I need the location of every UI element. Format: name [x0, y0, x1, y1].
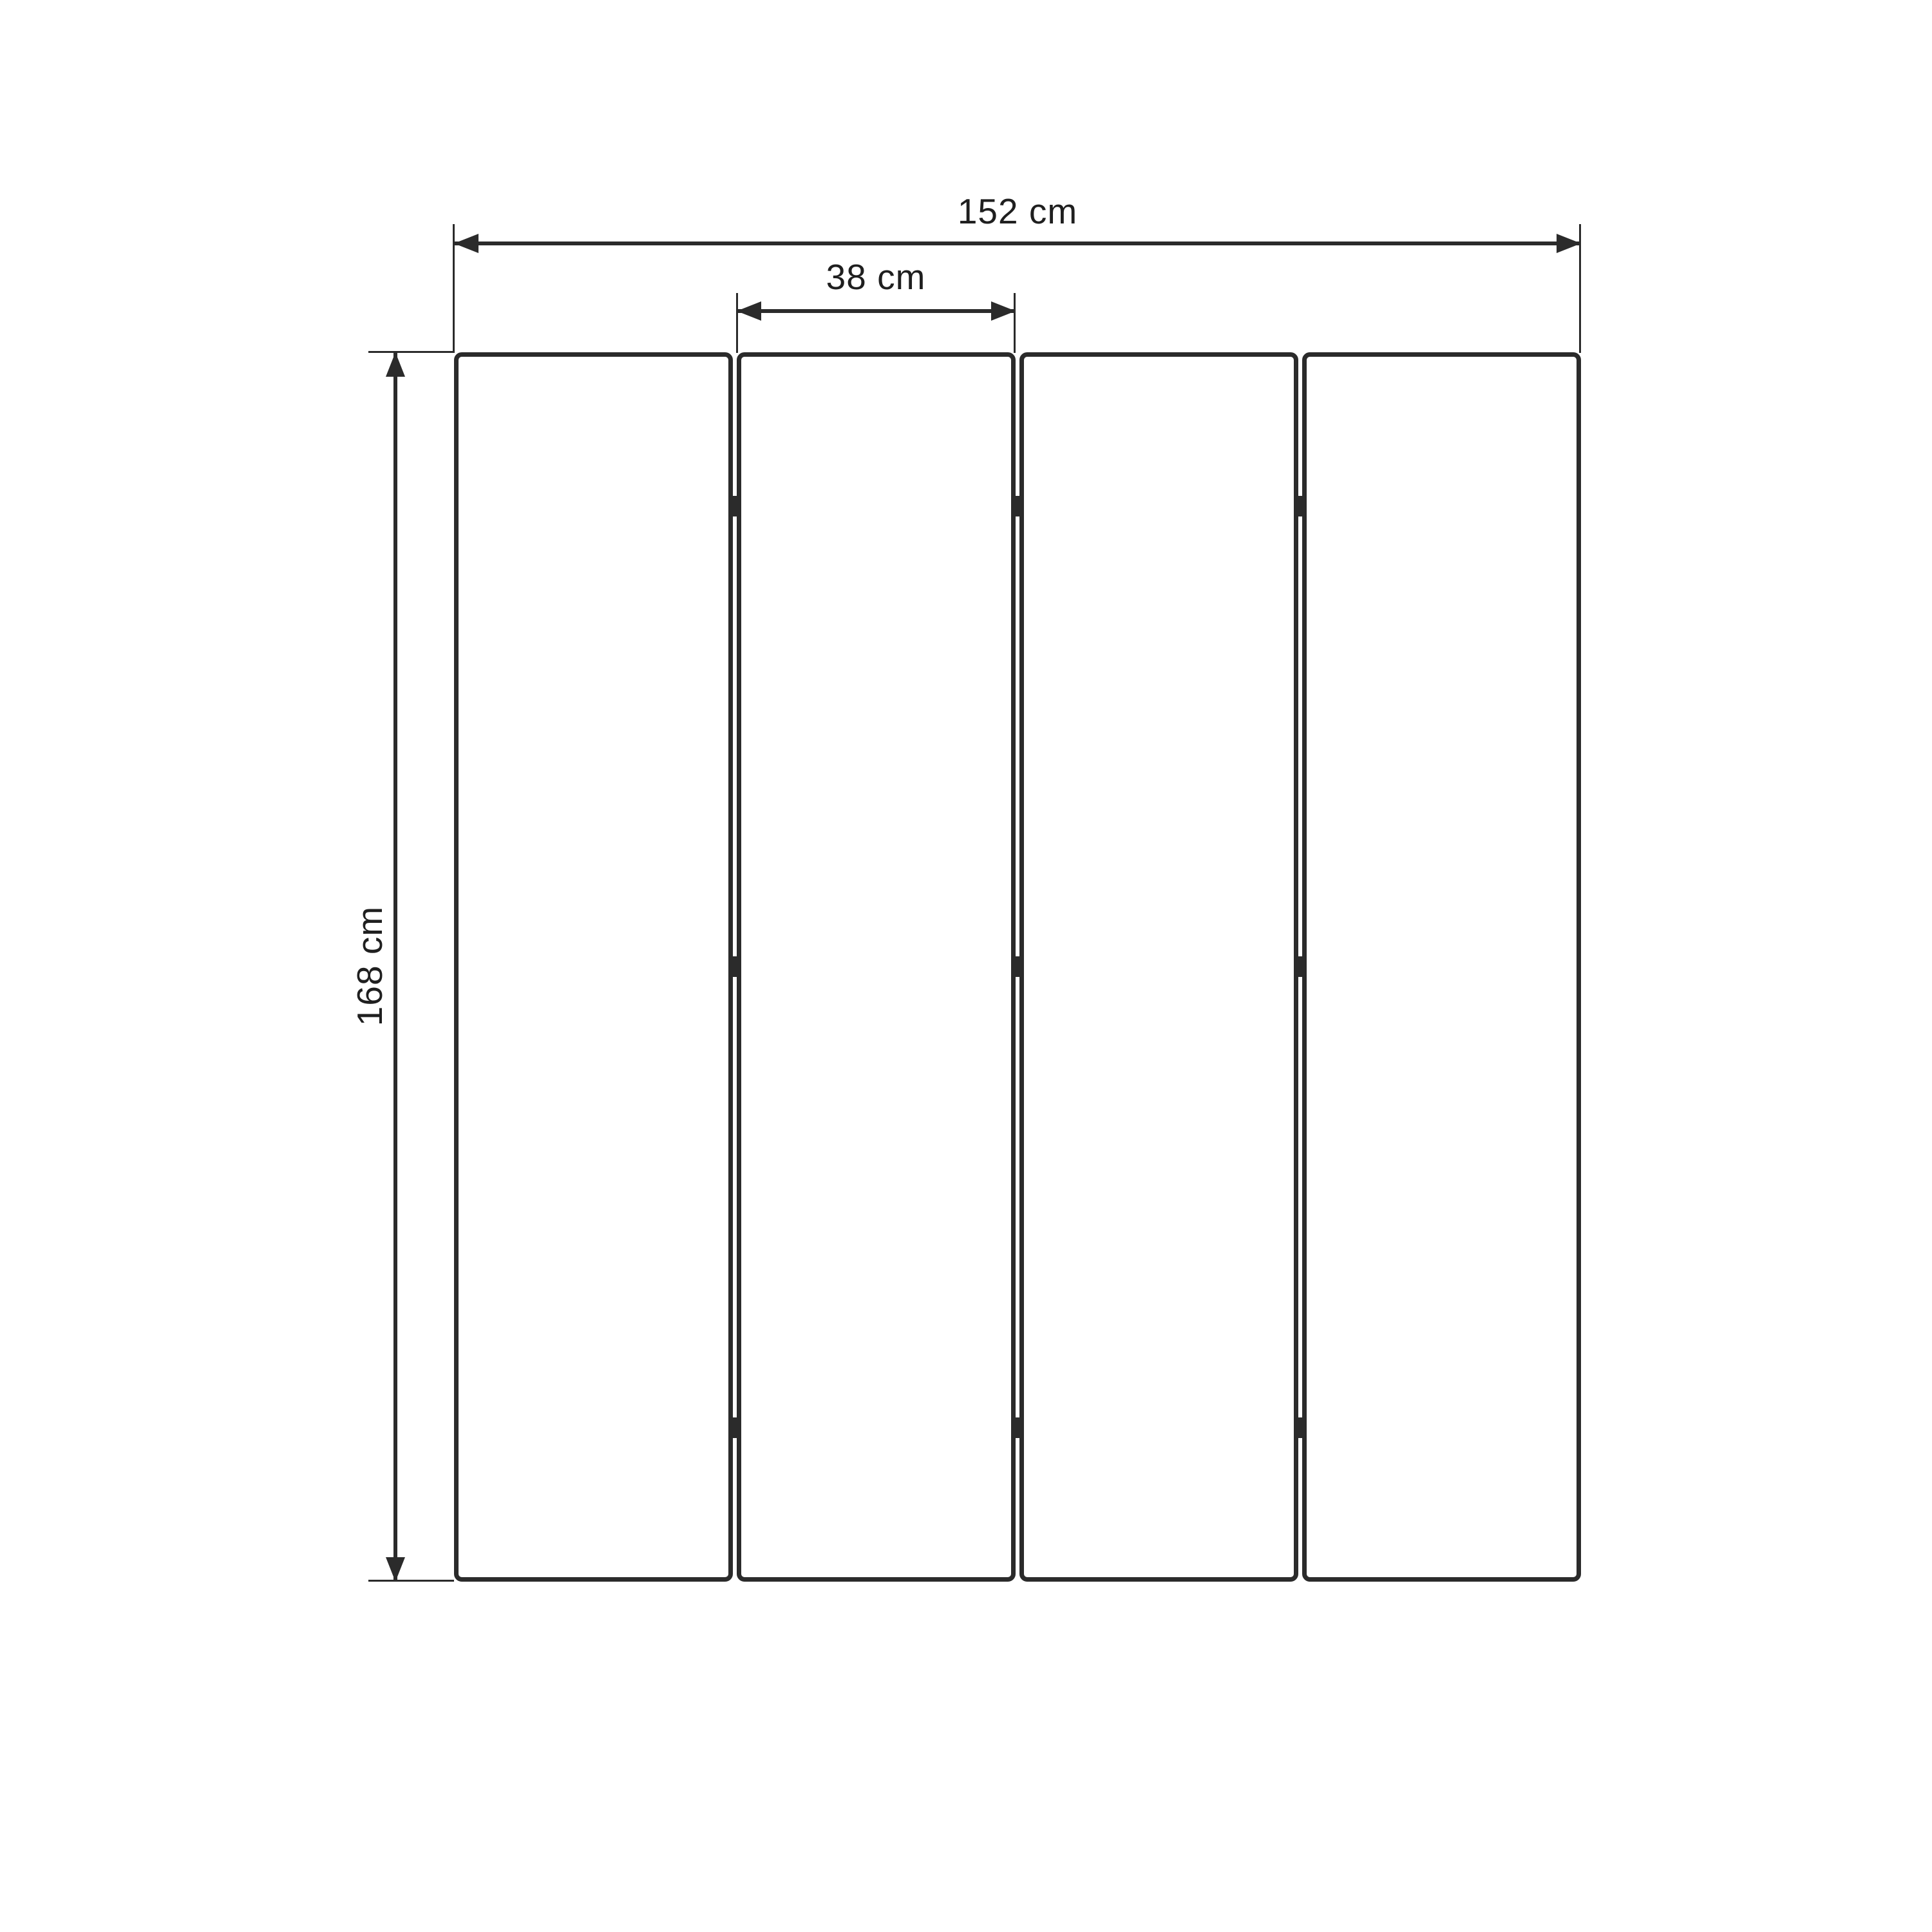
total-width-arrowhead-left-icon	[454, 234, 478, 253]
hinge-mark	[730, 956, 741, 977]
hinge-mark	[730, 1417, 741, 1438]
hinge-mark	[1295, 956, 1306, 977]
divider-panel-1	[454, 352, 733, 1582]
height-dimension-label: 168 cm	[349, 906, 390, 1026]
panel-width-extension-line-left	[736, 293, 738, 353]
hinge-mark	[1012, 956, 1023, 977]
total-width-extension-line-left	[453, 224, 455, 353]
height-arrowhead-up-icon	[386, 352, 405, 377]
total-width-extension-line-right	[1579, 224, 1581, 353]
diagram-canvas: 152 cm 38 cm 168 cm	[0, 0, 1932, 1932]
panel-width-dimension-line	[737, 309, 1016, 313]
panel-width-arrowhead-left-icon	[737, 301, 761, 321]
panel-width-extension-line-right	[1014, 293, 1016, 353]
height-dimension-line	[393, 352, 397, 1582]
total-width-arrowhead-right-icon	[1557, 234, 1581, 253]
panel-width-dimension-label: 38 cm	[826, 256, 926, 298]
hinge-mark	[1295, 496, 1306, 516]
divider-panels-group	[454, 352, 1581, 1582]
height-extension-line-bottom	[368, 1580, 454, 1582]
height-arrowhead-down-icon	[386, 1557, 405, 1582]
total-width-dimension-line	[454, 241, 1581, 245]
hinge-mark	[730, 496, 741, 516]
total-width-dimension-label: 152 cm	[958, 191, 1077, 232]
divider-panel-4	[1302, 352, 1581, 1582]
hinge-mark	[1012, 496, 1023, 516]
hinge-mark	[1295, 1417, 1306, 1438]
hinge-mark	[1012, 1417, 1023, 1438]
height-extension-line-top	[368, 351, 454, 353]
divider-panel-2	[737, 352, 1016, 1582]
divider-panel-3	[1019, 352, 1298, 1582]
panel-width-arrowhead-right-icon	[991, 301, 1016, 321]
